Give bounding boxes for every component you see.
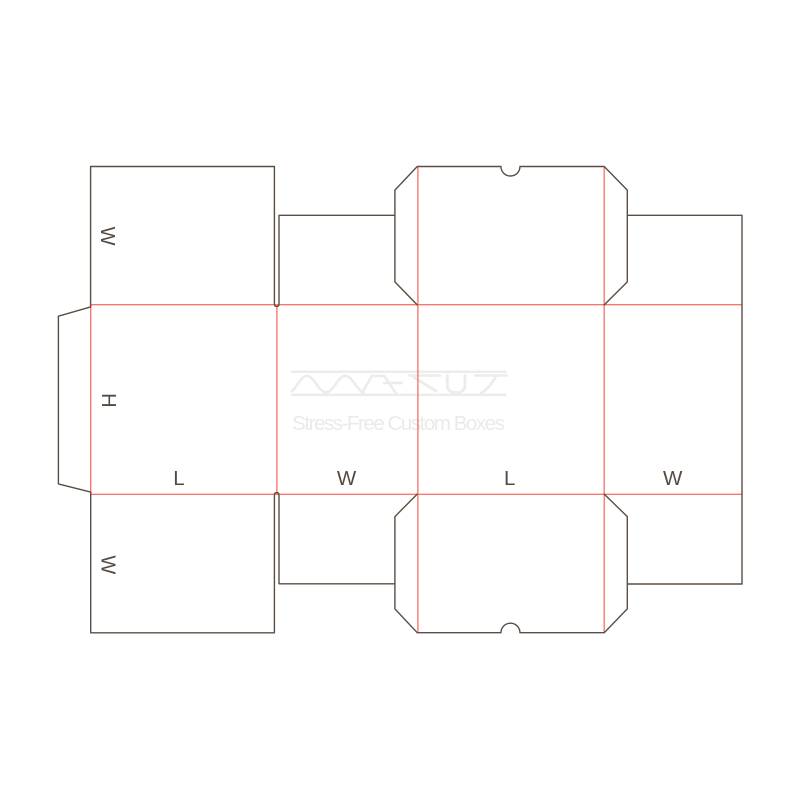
svg-text:W: W bbox=[96, 227, 118, 246]
svg-text:W: W bbox=[96, 555, 118, 574]
svg-text:W: W bbox=[663, 467, 683, 490]
svg-text:L: L bbox=[504, 467, 515, 490]
svg-text:L: L bbox=[173, 467, 184, 490]
svg-text:W: W bbox=[337, 467, 357, 490]
svg-text:Stress-Free Custom Boxes: Stress-Free Custom Boxes bbox=[292, 412, 504, 435]
svg-text:H: H bbox=[97, 393, 119, 407]
